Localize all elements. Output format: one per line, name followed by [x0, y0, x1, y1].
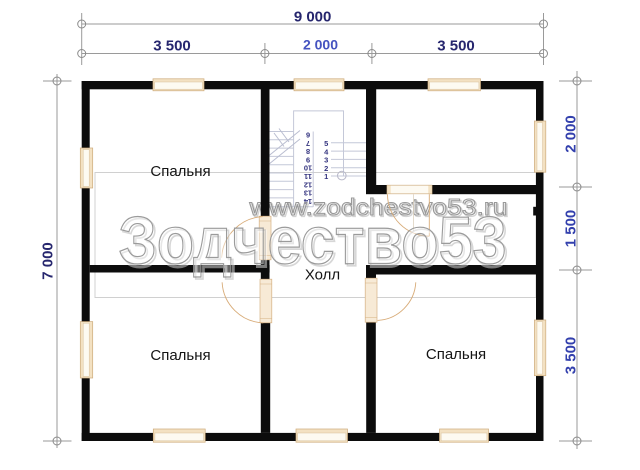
svg-text:1 500: 1 500 — [563, 210, 580, 248]
svg-text:Спальня: Спальня — [426, 346, 486, 363]
svg-text:3 500: 3 500 — [437, 38, 475, 55]
svg-text:10: 10 — [304, 164, 312, 173]
svg-text:Зодчество53: Зодчество53 — [119, 204, 507, 279]
svg-text:9: 9 — [306, 155, 310, 164]
svg-text:12: 12 — [304, 180, 312, 189]
svg-text:3 500: 3 500 — [563, 337, 580, 375]
svg-text:6: 6 — [306, 131, 310, 140]
svg-text:7: 7 — [306, 139, 310, 148]
svg-text:9 000: 9 000 — [294, 9, 332, 26]
svg-text:7 000: 7 000 — [40, 242, 57, 280]
svg-text:3 500: 3 500 — [153, 38, 191, 55]
svg-text:2 000: 2 000 — [303, 37, 338, 53]
svg-text:Спальня: Спальня — [150, 163, 210, 180]
svg-text:8: 8 — [306, 147, 310, 156]
svg-text:2 000: 2 000 — [563, 115, 580, 153]
svg-text:11: 11 — [304, 172, 312, 181]
svg-text:Спальня: Спальня — [150, 347, 210, 364]
svg-text:1: 1 — [324, 172, 328, 181]
